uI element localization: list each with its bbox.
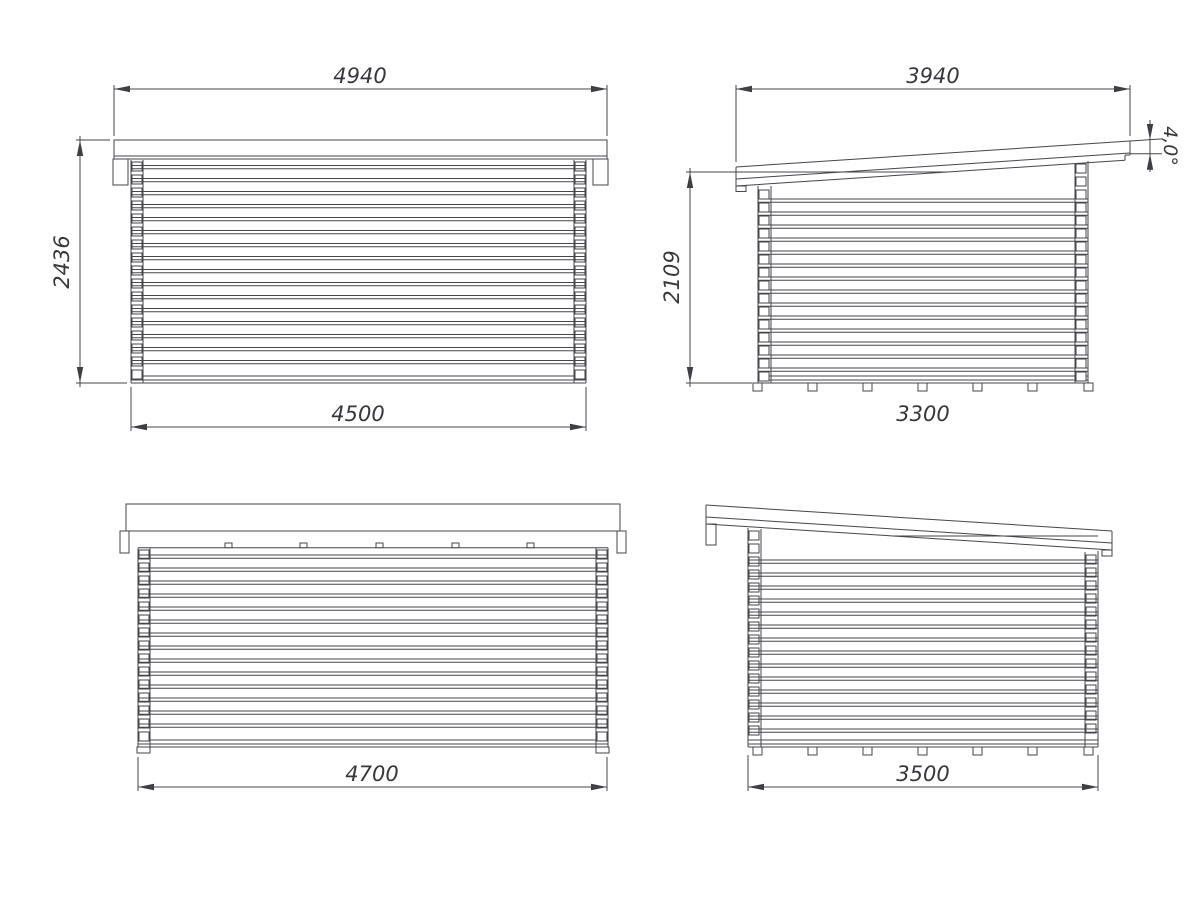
front-elevation-view: 4940 2436 4500 — [50, 64, 608, 431]
rear-elevation-view: 4700 — [120, 504, 626, 791]
side-elevation-right-view: 3940 2109 3300 4,0° — [660, 64, 1181, 426]
side-right-wall-depth-dimension: 3300 — [896, 402, 949, 426]
side-right-height-dimension: 2109 — [660, 250, 684, 303]
front-roof-width-dimension: 4940 — [333, 64, 386, 88]
front-wall-width-dimension: 4500 — [331, 402, 384, 426]
rear-wall-width-dimension: 4700 — [345, 762, 398, 786]
side-elevation-left-view: 3500 — [706, 505, 1112, 791]
drawing-sheet: 4940 2436 4500 3940 2109 3300 4,0° 4700 … — [0, 0, 1200, 900]
elevation-drawing-canvas: 4940 2436 4500 3940 2109 3300 4,0° 4700 … — [0, 0, 1200, 900]
roof-angle-dimension: 4,0° — [1159, 126, 1181, 166]
side-right-roof-depth-dimension: 3940 — [906, 64, 959, 88]
front-height-dimension: 2436 — [50, 235, 74, 288]
side-left-wall-depth-dimension: 3500 — [896, 762, 949, 786]
